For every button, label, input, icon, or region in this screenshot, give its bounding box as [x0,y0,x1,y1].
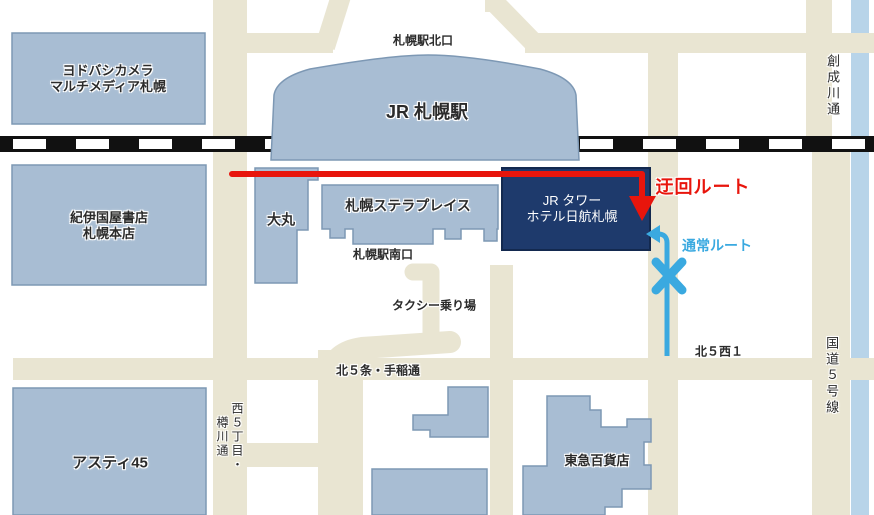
soseigawa-river [851,0,869,515]
building-asty45 [13,388,206,515]
road-north-diagonal-left [325,0,341,47]
access-map: ヨドバシカメラ マルチメディア札幌 紀伊国屋書店 札幌本店 JR 札幌駅 大丸 … [0,0,874,515]
route-label-normal: 通常ルート [682,237,752,255]
building-label-jr-tower-hotel: JR タワー ホテル日航札幌 [526,193,617,226]
label-taxi-stand: タクシー乗り場 [392,299,476,314]
label-station-south-exit: 札幌駅南口 [353,248,413,263]
road-label-kita5jo-teine-dori: 北５条・手稲通 [336,364,420,379]
building-label-kinokuniya: 紀伊国屋書店 札幌本店 [70,210,148,243]
building-label-asty45: アスティ45 [72,455,148,474]
road-label-nishi5chome-tarukawa-dori: 西５丁目・樽川通 [214,398,244,476]
road-north-right [525,33,874,53]
building-label-stellar-place: 札幌ステラプレイス [345,197,471,215]
road-side-stub [247,443,318,467]
building-small-l-shape [413,387,488,437]
road-label-soseigawa-dori: 創成川通 [824,54,840,118]
road-route5-south [812,136,850,515]
label-station-north-exit: 札幌駅北口 [393,34,453,49]
building-label-yodobashi: ヨドバシカメラ マルチメディア札幌 [50,63,166,96]
building-label-tokyu: 東急百貨店 [564,453,629,469]
building-bottom-center [372,469,487,515]
road-kita5jo-horizontal [13,358,874,380]
route-label-detour: 迂回ルート [656,176,751,199]
road-label-route5: 国道５号線 [823,336,839,416]
road-plaza-vertical [490,265,513,515]
label-kita5-nishi1: 北５西１ [695,345,743,360]
building-label-daimaru: 大丸 [267,211,295,229]
building-label-jr-station: JR 札幌駅 [386,101,468,124]
road-north-diagonal-right [494,2,533,42]
